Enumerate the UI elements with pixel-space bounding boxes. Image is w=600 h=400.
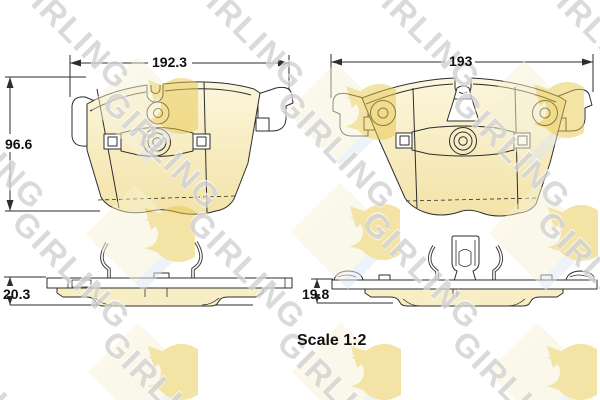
dim-arrow <box>278 60 289 67</box>
friction-profile <box>365 289 563 306</box>
damper-clip-right <box>514 133 530 148</box>
side-view-left-pad <box>47 242 292 306</box>
retainer-tab <box>154 273 169 278</box>
dim-arrow <box>7 277 13 286</box>
dim-arrow <box>7 77 14 88</box>
retainer-tab <box>379 275 390 280</box>
brake-pad-technical-drawing-sheet: GIRLING GIRLING GIRLING GIRLING GIRLING … <box>0 0 600 400</box>
abutment-tab <box>256 118 269 131</box>
sensor-notch-tab <box>151 85 160 94</box>
damper-clip-left <box>104 134 121 149</box>
front-view-left-pad <box>72 82 293 214</box>
dim-label-thickness-right: 19.8 <box>302 287 329 301</box>
dim-arrow <box>331 59 342 66</box>
dim-label-thickness-left: 20.3 <box>3 287 30 301</box>
scale-label: Scale 1:2 <box>297 333 366 349</box>
damper-clip-right <box>193 134 210 149</box>
wear-sensor-hole <box>147 102 169 124</box>
backplate-strip <box>47 278 292 288</box>
end-hump-left <box>334 271 363 280</box>
dim-arrow <box>7 200 14 211</box>
end-hump-right <box>566 271 595 280</box>
retainer-tab <box>541 275 552 280</box>
dim-arrow <box>582 59 593 66</box>
dim-label-width-right: 193 <box>449 54 472 68</box>
damper-clip-left <box>396 133 412 148</box>
front-view-right-pad <box>333 78 592 216</box>
side-view-right-pad <box>332 236 597 306</box>
dim-label-height-left: 96.6 <box>5 137 32 151</box>
friction-profile <box>57 288 263 306</box>
dim-arrow <box>70 60 81 67</box>
backplate-strip <box>332 280 597 289</box>
dim-label-width-left: 192.3 <box>152 55 187 69</box>
